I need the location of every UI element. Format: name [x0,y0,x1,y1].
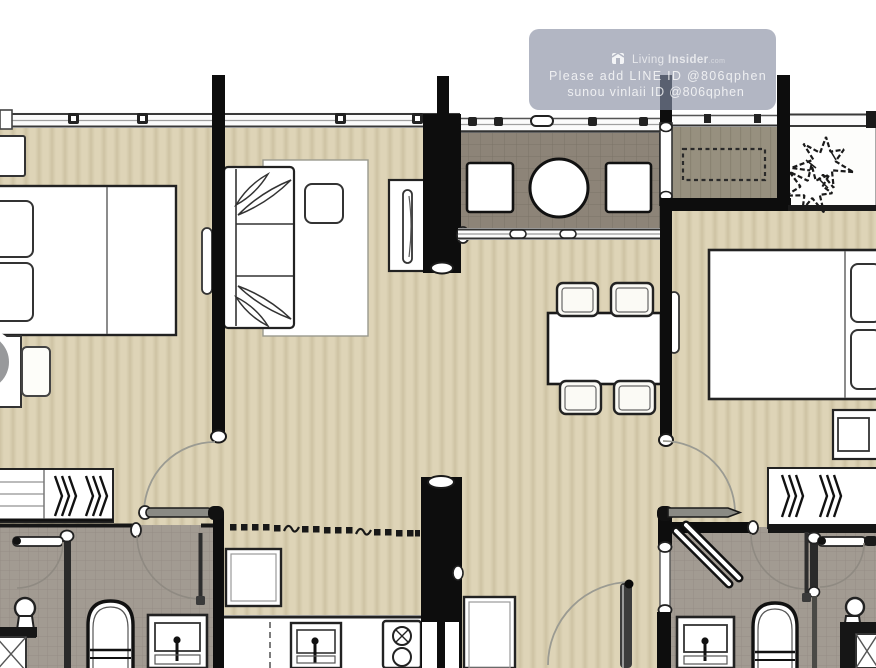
svg-text:sunou vinlaii ID @806qphen: sunou vinlaii ID @806qphen [567,85,744,99]
svg-text:Please add LINE ID @806qphen: Please add LINE ID @806qphen [549,69,767,83]
